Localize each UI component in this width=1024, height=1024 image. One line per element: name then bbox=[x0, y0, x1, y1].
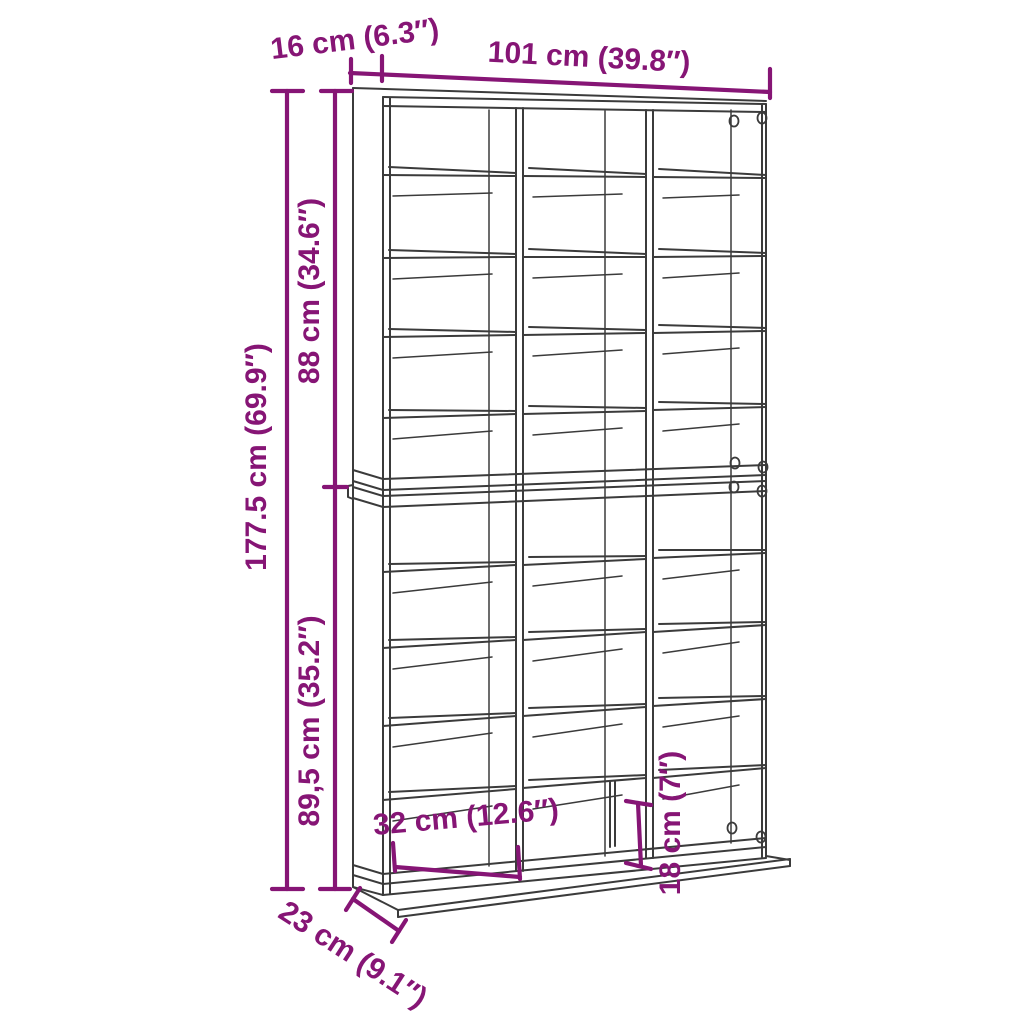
shelf-row bbox=[383, 622, 766, 669]
dim-label-top-depth: 16 cm (6.3″) bbox=[269, 13, 441, 66]
shelf-row bbox=[383, 249, 766, 279]
shelf-row bbox=[383, 402, 766, 439]
cabinet-shelves bbox=[383, 167, 766, 847]
shelf-row bbox=[383, 325, 766, 358]
dim-label-inner-width: 32 cm (12.6″) bbox=[372, 793, 560, 842]
dim-label-lower-height: 89,5 cm (35.2″) bbox=[293, 615, 326, 826]
dim-label-base-depth: 23 cm (9.1″) bbox=[273, 895, 433, 1015]
diagram-svg: 16 cm (6.3″) 101 cm (39.8″) 88 cm (34.6″… bbox=[0, 0, 1024, 1024]
cabinet-base bbox=[353, 838, 790, 917]
dimension-diagram: 16 cm (6.3″) 101 cm (39.8″) 88 cm (34.6″… bbox=[0, 0, 1024, 1024]
shelf-row bbox=[383, 550, 766, 593]
dim-label-total-height: 177.5 cm (69.9″) bbox=[240, 343, 273, 571]
shelf-row bbox=[383, 167, 766, 198]
dim-label-width: 101 cm (39.8″) bbox=[487, 36, 691, 80]
mini-divider bbox=[610, 781, 615, 847]
dim-label-upper-height: 88 cm (34.6″) bbox=[293, 198, 326, 384]
dim-label-inner-height: 18 cm (7″) bbox=[654, 751, 687, 895]
shelving-unit-drawing bbox=[348, 88, 790, 917]
dim-line-inner-width bbox=[393, 843, 520, 879]
shelf-row bbox=[383, 696, 766, 747]
dimension-labels: 16 cm (6.3″) 101 cm (39.8″) 88 cm (34.6″… bbox=[240, 13, 691, 1015]
cabinet-junction bbox=[348, 465, 766, 507]
